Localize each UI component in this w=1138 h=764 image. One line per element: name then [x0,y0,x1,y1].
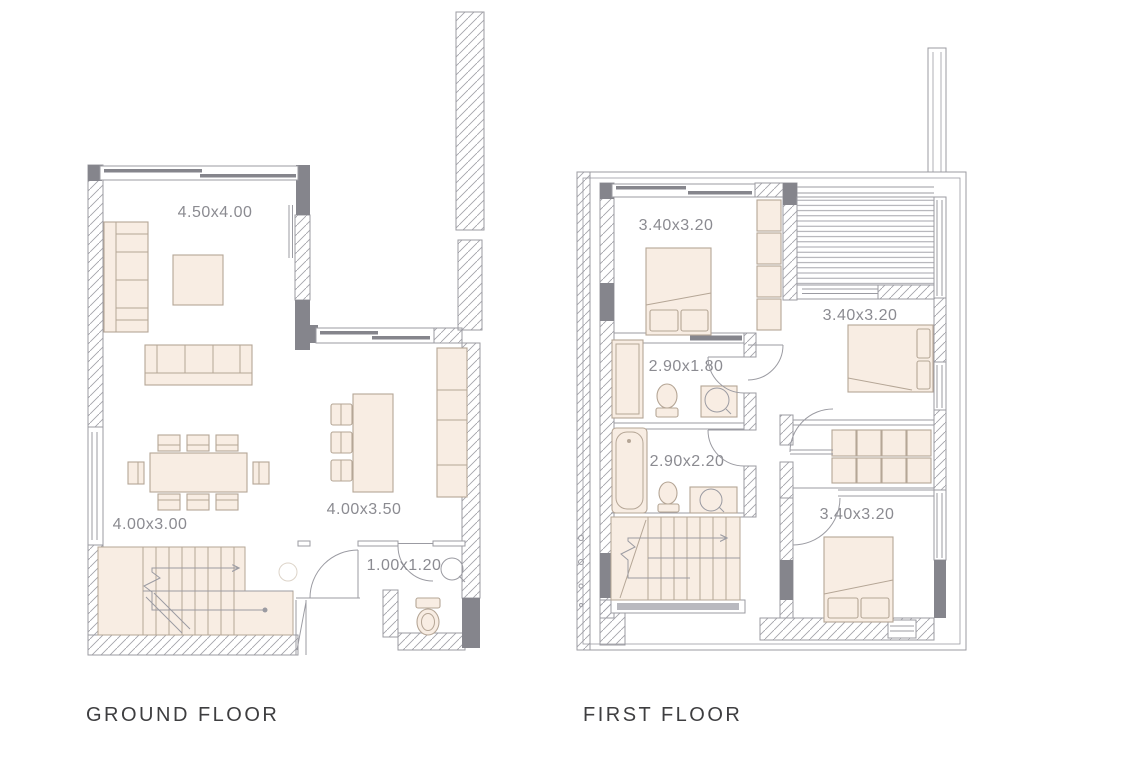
living-room-dimensions: 4.50x4.00 [178,204,253,221]
floor-plan-canvas: 4.50x4.00 4.00x3.00 [0,0,1138,764]
kitchen-island [353,394,393,492]
bedroom-back-dimensions: 3.40x3.20 [820,506,895,523]
first-floor-title: FIRST FLOOR [583,704,742,727]
living-room-window [100,166,298,180]
bar-stools [331,404,352,481]
bedroom-front-dimensions: 3.40x3.20 [639,217,714,234]
toilet-small [656,384,678,417]
laundry-cabinet [612,340,643,418]
dining-area: 4.00x3.00 [113,435,269,533]
chimney [928,48,946,172]
ground-floor-title: GROUND FLOOR [86,704,279,727]
toilet-large [658,482,679,512]
bedroom-middle: 3.40x3.20 [823,307,933,392]
side-window [88,427,103,545]
ground-floor-stairs [98,547,293,635]
sofa-horizontal [145,345,252,385]
bathtub [612,428,647,513]
bedroom-front-window [612,184,755,197]
bathroom-small: 2.90x1.80 [612,340,737,418]
bathroom-small-dimensions: 2.90x1.80 [649,358,724,375]
entry-porch [296,598,360,655]
bathroom-large: 2.90x2.20 [612,428,737,513]
bathroom-large-dimensions: 2.90x2.20 [650,453,725,470]
wc: 1.00x1.20 [279,557,465,635]
wardrobe-front [757,200,781,330]
wc-sink [441,558,465,582]
bed-back [824,537,893,622]
dining-table [150,453,247,492]
entrance-door [310,550,358,598]
wc-toilet [416,598,440,635]
floor-plans-drawing: 4.50x4.00 4.00x3.00 [0,0,1138,764]
first-floor-plan: 3.40x3.20 2.90x1.80 [577,48,966,650]
corridor-window [316,328,462,343]
bedroom-back: 3.40x3.20 [820,506,895,622]
bedroom-back-window [888,620,916,638]
terrace-bottom-wall [797,285,934,299]
bedroom-middle-door [790,409,833,454]
sink-large [690,487,737,513]
coffee-table [173,255,223,305]
bedroom-front: 3.40x3.20 [639,200,781,335]
bed-front [646,248,711,335]
right-wall [934,197,946,618]
first-floor-stairs [611,517,740,600]
bedroom-middle-dimensions: 3.40x3.20 [823,307,898,324]
dining-dimensions: 4.00x3.00 [113,516,188,533]
ceiling-light [279,563,297,581]
terrace [797,197,934,285]
kitchen-counter [437,348,467,497]
wc-dimensions: 1.00x1.20 [367,557,442,574]
boundary-wall [456,12,484,330]
ground-floor-plan: 4.50x4.00 4.00x3.00 [88,12,484,655]
kitchen: 4.00x3.50 [327,348,467,518]
sofa-vertical [104,222,148,332]
living-room: 4.50x4.00 [104,204,252,385]
hall-closet [832,430,931,483]
kitchen-dimensions: 4.00x3.50 [327,501,402,518]
bed-middle [848,325,933,392]
